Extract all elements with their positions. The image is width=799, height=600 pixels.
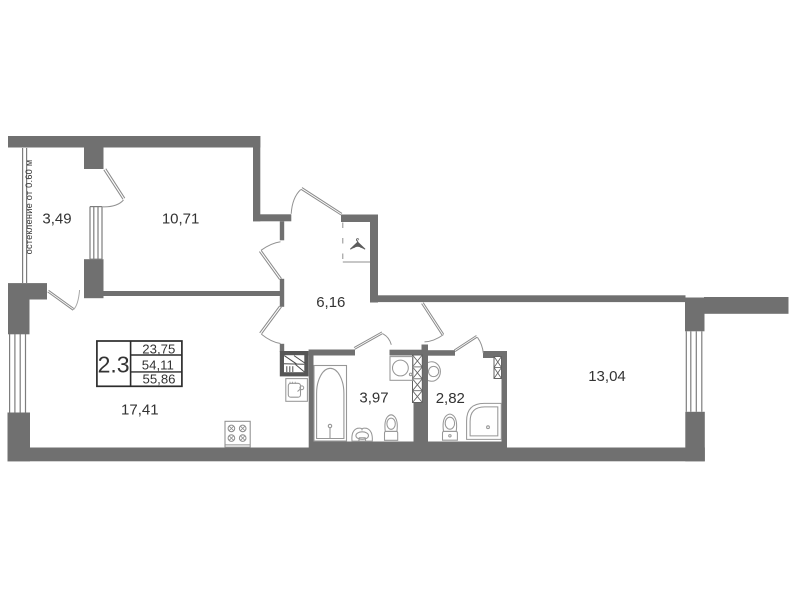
svg-text:3,49: 3,49 <box>42 211 71 228</box>
svg-text:13,04: 13,04 <box>588 368 626 385</box>
svg-text:3,97: 3,97 <box>359 389 388 406</box>
svg-text:23,75: 23,75 <box>142 342 175 357</box>
svg-text:55,86: 55,86 <box>142 372 175 387</box>
svg-text:2.3: 2.3 <box>98 351 130 377</box>
svg-text:2,82: 2,82 <box>436 390 465 407</box>
svg-text:54,11: 54,11 <box>142 358 174 373</box>
svg-text:6,16: 6,16 <box>316 294 345 311</box>
svg-text:10,71: 10,71 <box>162 210 200 227</box>
svg-text:17,41: 17,41 <box>121 401 159 418</box>
svg-text:остекление от 0.60 м: остекление от 0.60 м <box>24 160 34 255</box>
